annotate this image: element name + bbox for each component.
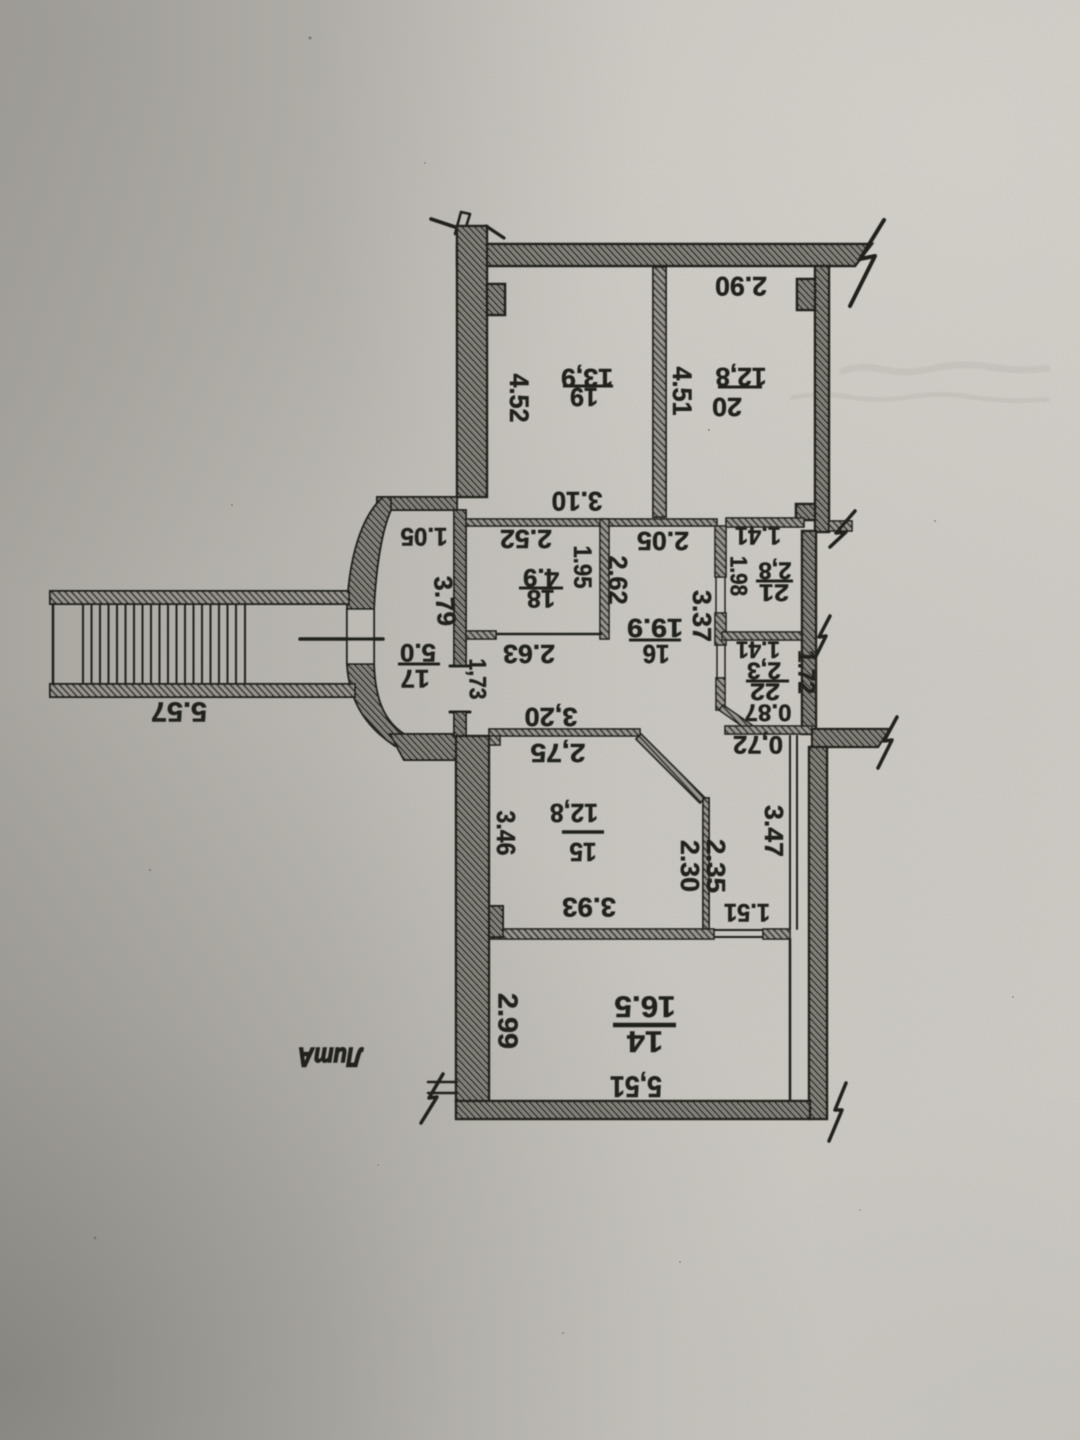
svg-text:1.72: 1.72 [793, 650, 820, 694]
svg-text:0.87: 0.87 [745, 699, 792, 726]
svg-text:3.10: 3.10 [552, 486, 603, 516]
svg-text:ЛитА: ЛитА [298, 1042, 364, 1072]
svg-text:2.52: 2.52 [500, 524, 552, 554]
svg-text:2.63: 2.63 [503, 639, 555, 669]
svg-text:15: 15 [570, 837, 597, 867]
svg-text:3.37: 3.37 [687, 590, 717, 642]
svg-text:3,20: 3,20 [525, 702, 578, 732]
svg-text:18: 18 [527, 584, 555, 612]
svg-text:1.41: 1.41 [735, 521, 781, 549]
svg-text:2.90: 2.90 [715, 271, 767, 301]
svg-text:5.0: 5.0 [400, 638, 436, 666]
svg-text:16: 16 [643, 639, 670, 669]
svg-text:4.52: 4.52 [504, 374, 534, 423]
svg-text:0,72: 0,72 [733, 730, 783, 758]
svg-text:14: 14 [627, 1025, 663, 1058]
svg-text:17: 17 [401, 664, 430, 692]
svg-text:20: 20 [712, 392, 742, 422]
svg-text:1.98: 1.98 [725, 556, 752, 596]
svg-text:2.30: 2.30 [675, 840, 705, 892]
svg-text:1.95: 1.95 [568, 546, 596, 589]
svg-text:2.05: 2.05 [637, 526, 689, 556]
svg-text:3.46: 3.46 [491, 811, 521, 856]
svg-text:5,51: 5,51 [610, 1070, 662, 1103]
svg-text:1.05: 1.05 [400, 522, 447, 550]
svg-text:16.5: 16.5 [615, 990, 676, 1023]
svg-text:3.93: 3.93 [562, 892, 616, 922]
svg-text:1,73: 1,73 [464, 659, 491, 700]
svg-text:19: 19 [570, 382, 598, 412]
svg-text:3.79: 3.79 [428, 575, 462, 627]
svg-text:2.62: 2.62 [603, 556, 633, 605]
svg-text:3.47: 3.47 [759, 805, 789, 857]
svg-text:12,8: 12,8 [550, 798, 598, 828]
svg-text:2.99: 2.99 [493, 993, 524, 1049]
svg-text:1.51: 1.51 [724, 898, 770, 926]
svg-text:4.51: 4.51 [667, 367, 697, 416]
svg-text:2,75: 2,75 [531, 738, 586, 768]
svg-text:21: 21 [759, 579, 789, 606]
svg-text:5.57: 5.57 [151, 697, 207, 728]
